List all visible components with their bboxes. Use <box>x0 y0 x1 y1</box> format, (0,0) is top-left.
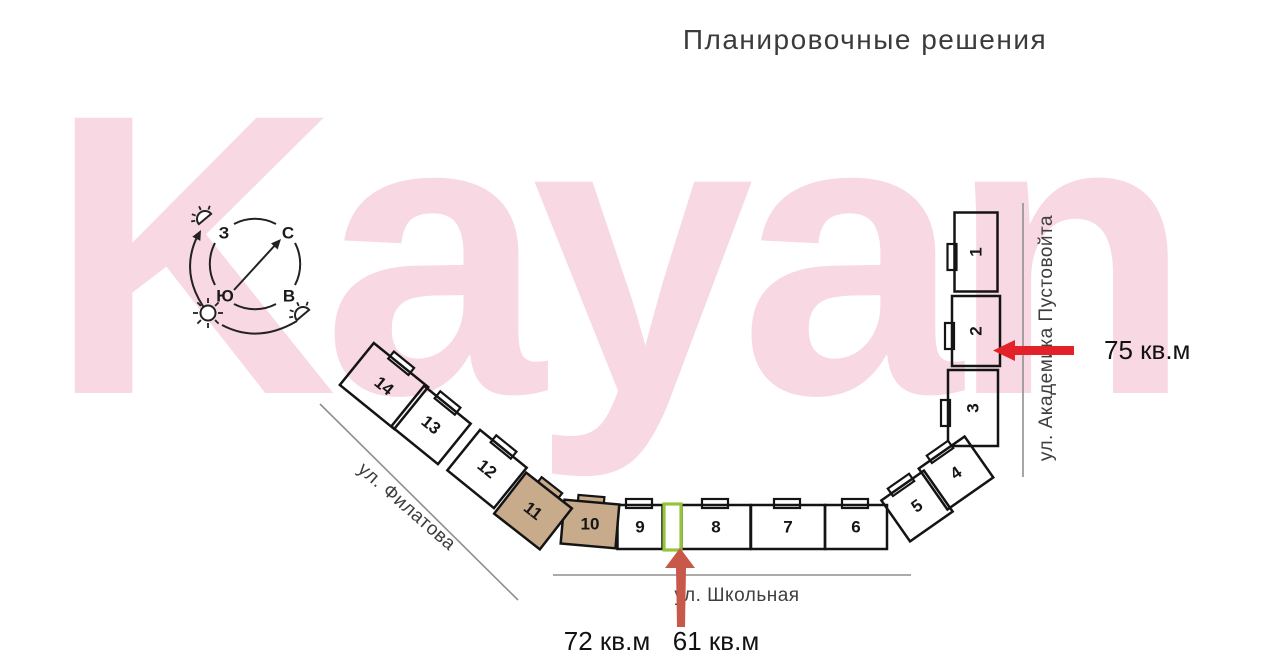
sunset-icon-ray <box>198 206 201 210</box>
section-7-notch <box>774 499 800 508</box>
sunset-icon-ray <box>192 213 196 217</box>
sunrise-icon-disc <box>292 304 309 320</box>
section-1-label: 1 <box>967 247 986 256</box>
compass-circle-arc <box>210 243 215 285</box>
section-13-label: 13 <box>418 412 445 439</box>
section-6-notch <box>842 499 868 508</box>
compass-east-label: В <box>283 287 295 306</box>
section-14-label: 14 <box>371 373 398 400</box>
north-arrow <box>234 243 277 290</box>
sunrise-icon-ray <box>296 302 299 306</box>
street-label-filatova: ул. Филатова <box>353 459 459 555</box>
area-label-area-75: 75 кв.м <box>1104 335 1190 365</box>
compass-circle-arc <box>234 304 276 309</box>
area-label-area-72: 72 кв.м <box>564 626 650 656</box>
sunrise-icon-ray <box>289 315 293 319</box>
arrow-area-75 <box>993 340 1074 361</box>
section-12-label: 12 <box>474 456 501 483</box>
sunset-icon-ray <box>191 219 195 223</box>
sunset-icon <box>187 201 214 227</box>
compass-circle-arc <box>234 219 276 224</box>
plan-canvas: Kayan Планировочные решения ул. Филатова… <box>0 0 1280 662</box>
arrow-head <box>993 340 1015 361</box>
street-pustovoyta: ул. Академика Пустовойта <box>1023 203 1057 477</box>
section-2-label: 2 <box>967 326 986 335</box>
compass-north-label: С <box>282 224 294 243</box>
sun-ray <box>197 320 201 324</box>
compass-south-label: Ю <box>216 287 234 306</box>
compass-circle-arc <box>295 243 300 285</box>
street-label-shkolnaya: ул. Школьная <box>674 585 799 606</box>
section-5-label: 5 <box>908 496 927 517</box>
street-shkolnaya: ул. Школьная <box>553 575 911 606</box>
sun-disc <box>201 306 216 321</box>
section-4-label: 4 <box>947 462 966 483</box>
section-7-label: 7 <box>783 518 792 537</box>
sunset-icon-disc <box>194 208 211 224</box>
sun-path-arc <box>222 321 297 334</box>
sun-icon <box>193 298 223 328</box>
section-9-notch <box>626 499 652 508</box>
page-title: Планировочные решения <box>590 24 1140 56</box>
section-8-notch <box>702 499 728 508</box>
sun-ray <box>215 320 219 324</box>
sunrise-icon-ray <box>305 302 309 306</box>
section-3-label: 3 <box>964 403 983 412</box>
plan-svg: ул. Филатоваул. Школьнаяул. Академика Пу… <box>0 0 1280 662</box>
compass-west-label: З <box>219 224 230 243</box>
selected-unit-outline[interactable] <box>664 504 681 550</box>
section-6-label: 6 <box>851 518 860 537</box>
sunset-icon-ray <box>207 206 211 210</box>
sunrise-icon-ray <box>290 309 294 313</box>
street-label-pustovoyta: ул. Академика Пустовойта <box>1036 215 1057 461</box>
section-9-label: 9 <box>635 518 644 537</box>
section-8-label: 8 <box>711 518 720 537</box>
compass-rose: ЗСЮВ <box>187 201 312 334</box>
section-10-label: 10 <box>581 515 600 534</box>
arrow-shaft <box>1012 346 1074 355</box>
area-label-area-61: 61 кв.м <box>673 626 759 656</box>
